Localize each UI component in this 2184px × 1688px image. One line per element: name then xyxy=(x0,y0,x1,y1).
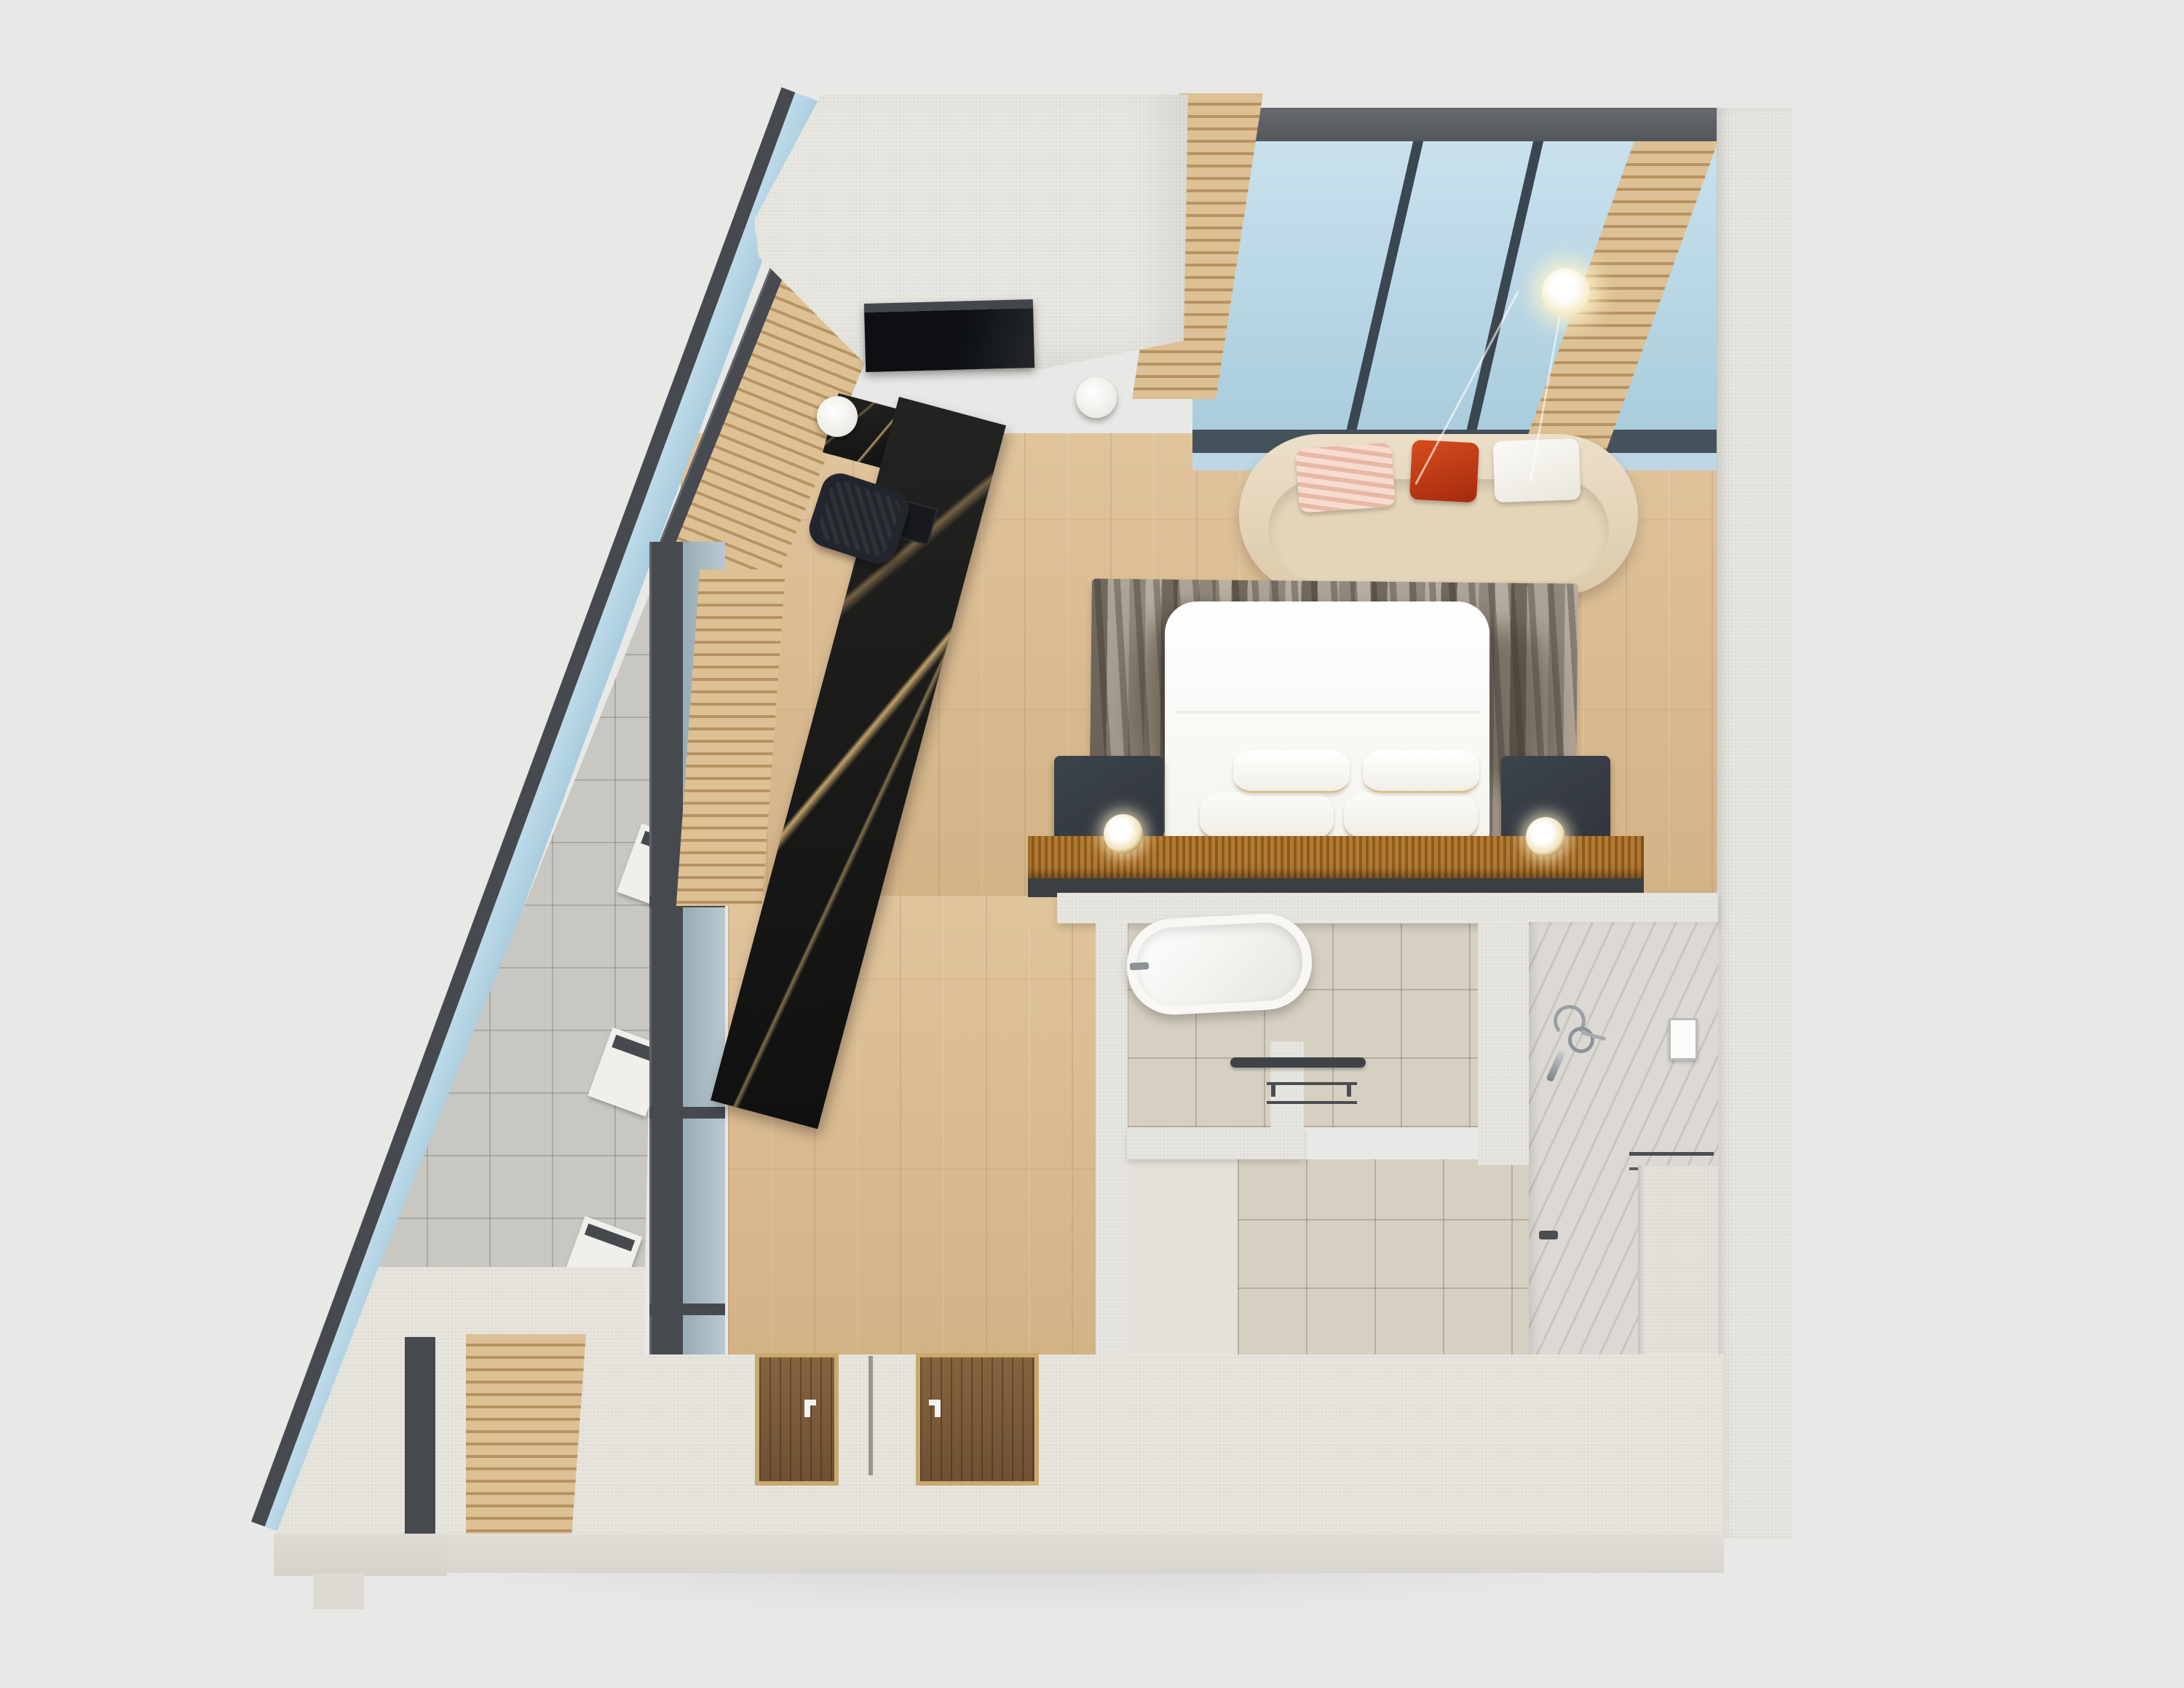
bathroom-top-wall xyxy=(1057,893,1718,923)
desk-lamp xyxy=(817,396,858,437)
towel-rack xyxy=(1267,1082,1357,1104)
window-mullion xyxy=(649,1107,725,1119)
door-handle xyxy=(935,1400,941,1417)
rack-post xyxy=(1271,1084,1275,1097)
wall-hook xyxy=(1539,1231,1558,1239)
bathroom-left-wall xyxy=(1096,922,1128,1359)
side-table xyxy=(1076,377,1117,418)
bed-pillow xyxy=(1363,750,1479,793)
shower-mixer xyxy=(1549,1005,1600,1085)
bathtub-basin xyxy=(1134,920,1304,1008)
slab-edge-left xyxy=(274,1534,447,1576)
bed-pillow xyxy=(1344,792,1478,841)
sofa-cushion-red xyxy=(1409,440,1479,503)
tub-alcove-wall-h xyxy=(1127,1127,1304,1159)
entry-door xyxy=(755,1353,839,1486)
door-gap-line xyxy=(869,1356,873,1475)
skylight-mullion xyxy=(1332,141,1426,470)
door-handle-bar xyxy=(804,1400,816,1405)
slat-screen-entry xyxy=(466,1334,586,1537)
pendant-lamp xyxy=(1542,268,1590,316)
door-handle xyxy=(804,1400,810,1417)
skylight-header-beam xyxy=(1192,108,1717,141)
duvet-fold xyxy=(1175,711,1479,714)
bathtub xyxy=(1125,911,1315,1017)
rack-post xyxy=(1347,1084,1351,1097)
sofa-cushion-striped xyxy=(1295,443,1396,513)
bed-pillow xyxy=(1200,792,1334,841)
bathroom-fill xyxy=(1127,1159,1238,1357)
bedside-lamp xyxy=(1104,814,1143,853)
towel-bar xyxy=(1230,1057,1366,1068)
floor-plan-render xyxy=(0,0,2184,1688)
shower-divider-wall xyxy=(1478,922,1529,1165)
window-mullion xyxy=(649,1304,725,1315)
window-wall-lower xyxy=(649,542,683,1359)
tv xyxy=(864,299,1034,372)
mixer-valve xyxy=(1568,1027,1594,1053)
bedside-lamp xyxy=(1526,817,1565,856)
slab-step-notch xyxy=(313,1573,364,1609)
facade-end-post xyxy=(405,1337,435,1535)
door-handle-bar xyxy=(929,1400,941,1405)
mixer-wand xyxy=(1546,1050,1565,1082)
chair-cushion xyxy=(815,478,903,559)
right-wall xyxy=(1717,108,1792,1538)
bed-pillow xyxy=(1233,750,1350,793)
bathtub-tap xyxy=(1130,962,1149,970)
skylight-mullion xyxy=(1452,141,1546,470)
entry-door xyxy=(916,1353,1039,1486)
soap-dispenser xyxy=(1669,1018,1698,1060)
slab-edge xyxy=(446,1534,1724,1573)
